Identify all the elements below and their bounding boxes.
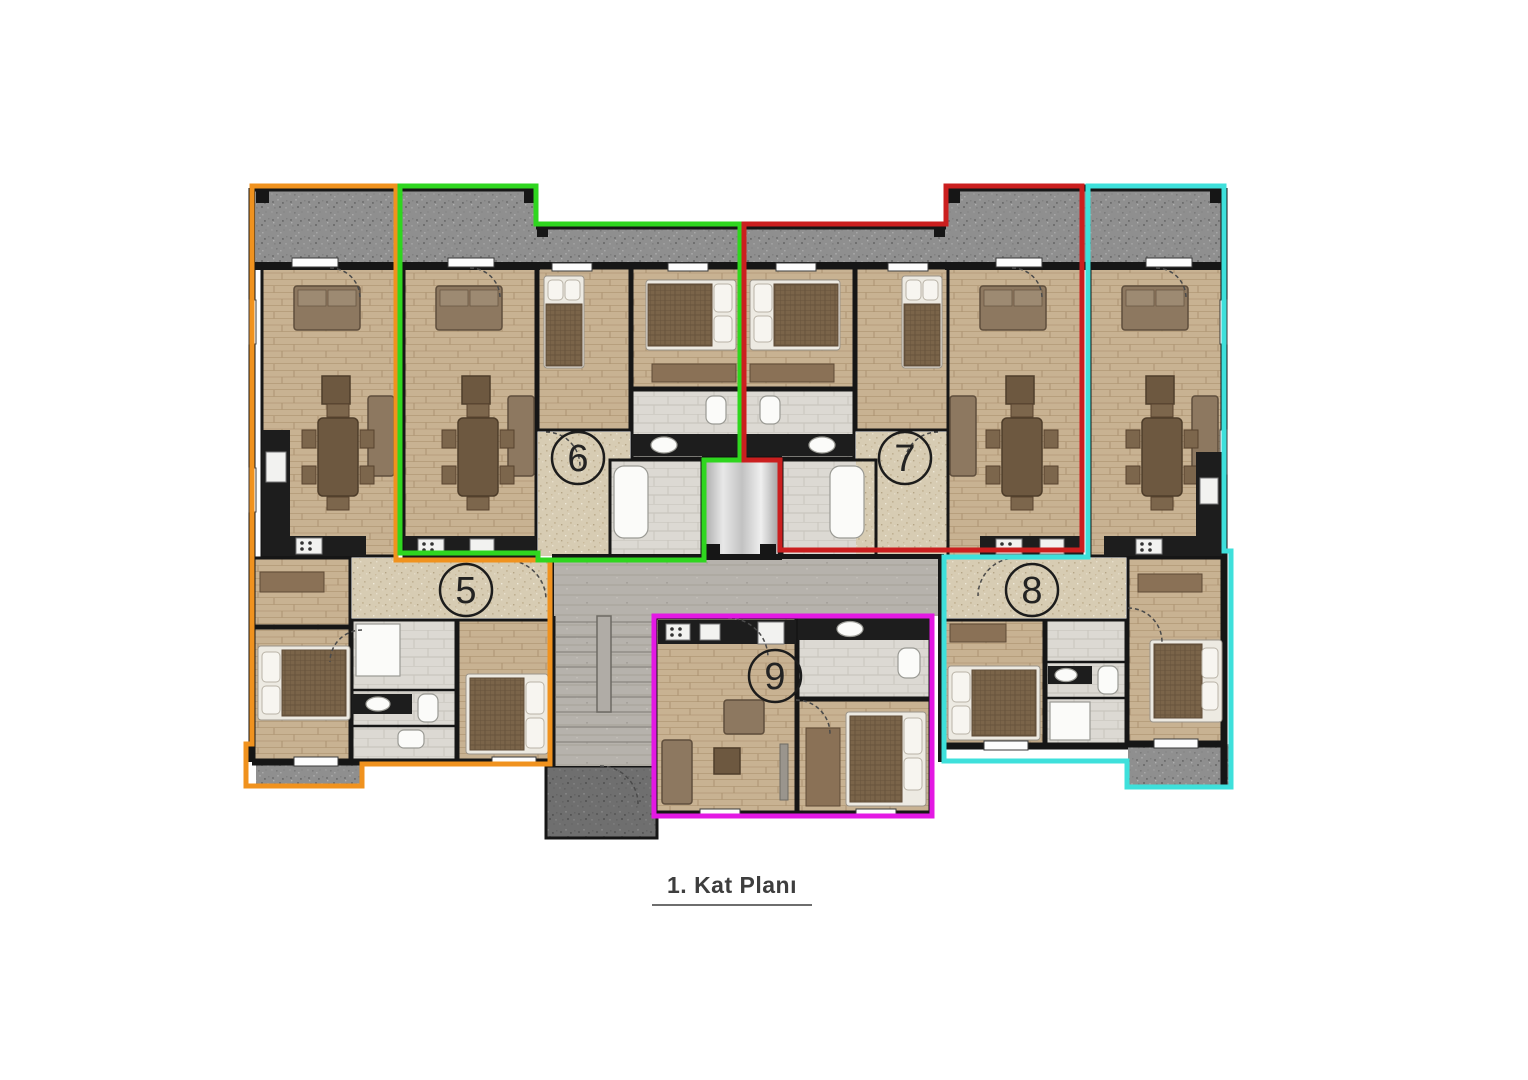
wardrobe: [652, 364, 736, 382]
unit-6-number: 6: [567, 438, 588, 480]
coffee-table: [322, 376, 350, 404]
desk: [950, 624, 1006, 642]
dining-table: [318, 418, 358, 496]
unit-9-number: 9: [764, 656, 785, 698]
dining-table: [1142, 418, 1182, 496]
toilet: [706, 396, 726, 424]
sofa: [950, 396, 976, 476]
window: [984, 741, 1028, 750]
elevator: [704, 458, 780, 558]
toilet: [898, 648, 920, 678]
toilet: [398, 730, 424, 748]
toilet: [1098, 666, 1118, 694]
kitchen-sink: [700, 624, 720, 640]
sink: [809, 437, 835, 453]
window: [292, 258, 338, 267]
bed-apt5-left: [258, 646, 350, 720]
kitchen-sink: [1200, 478, 1218, 504]
sofa: [662, 740, 692, 804]
floor-plan-image: 5 6 7 8 9 1. Kat Planı: [0, 0, 1528, 1080]
bed-apt6-master: [646, 280, 736, 350]
shower: [1050, 702, 1090, 740]
sink: [837, 622, 863, 637]
window: [1146, 258, 1192, 267]
wardrobe: [806, 728, 840, 806]
kitchen-sink: [266, 452, 286, 482]
dining-table: [458, 418, 498, 496]
coffee-table: [1006, 376, 1034, 404]
coffee-table: [462, 376, 490, 404]
kitchen-counter: [980, 536, 1082, 556]
bed-apt6-small: [544, 276, 584, 368]
corridor: [552, 558, 944, 616]
floor-plan-svg: 5 6 7 8 9 1. Kat Planı: [0, 0, 1528, 1080]
bathtub: [830, 466, 864, 538]
bed-apt5-right: [466, 674, 548, 754]
stove: [296, 538, 322, 554]
toilet: [760, 396, 780, 424]
bed-apt8-left: [948, 666, 1040, 740]
window: [552, 263, 592, 271]
unit-5-number: 5: [455, 570, 476, 612]
shower: [356, 624, 400, 676]
fridge: [758, 622, 784, 644]
window: [668, 263, 708, 271]
kitchen-counter: [1104, 536, 1222, 556]
toilet: [418, 694, 438, 722]
bed-apt7-master: [750, 280, 840, 350]
stair-stringer: [597, 616, 611, 712]
balcony-bottom-right: [1128, 744, 1230, 786]
coffee-table: [1146, 376, 1174, 404]
window: [294, 757, 338, 766]
stove: [1136, 539, 1162, 554]
kitchen-counter: [262, 430, 290, 536]
bed-apt9: [846, 712, 926, 806]
sink: [651, 437, 677, 453]
tv-unit: [780, 744, 788, 800]
sink: [1055, 669, 1077, 682]
bathtub: [614, 466, 648, 538]
window: [888, 263, 928, 271]
armchair: [724, 700, 764, 734]
window: [776, 263, 816, 271]
caption: 1. Kat Planı: [652, 872, 812, 905]
entrance-slab: [546, 766, 657, 838]
desk: [1138, 574, 1202, 592]
page-title: 1. Kat Planı: [667, 872, 797, 898]
bed-apt8-right: [1150, 640, 1222, 722]
stove: [666, 624, 690, 640]
desk: [260, 572, 324, 592]
sink: [366, 697, 390, 711]
dining-table: [1002, 418, 1042, 496]
unit-8-number: 8: [1021, 570, 1042, 612]
window: [448, 258, 494, 267]
unit-7-number: 7: [894, 438, 915, 480]
window: [1154, 739, 1198, 748]
window: [996, 258, 1042, 267]
coffee-table: [714, 748, 740, 774]
wardrobe: [750, 364, 834, 382]
bed-apt7-small: [902, 276, 942, 368]
